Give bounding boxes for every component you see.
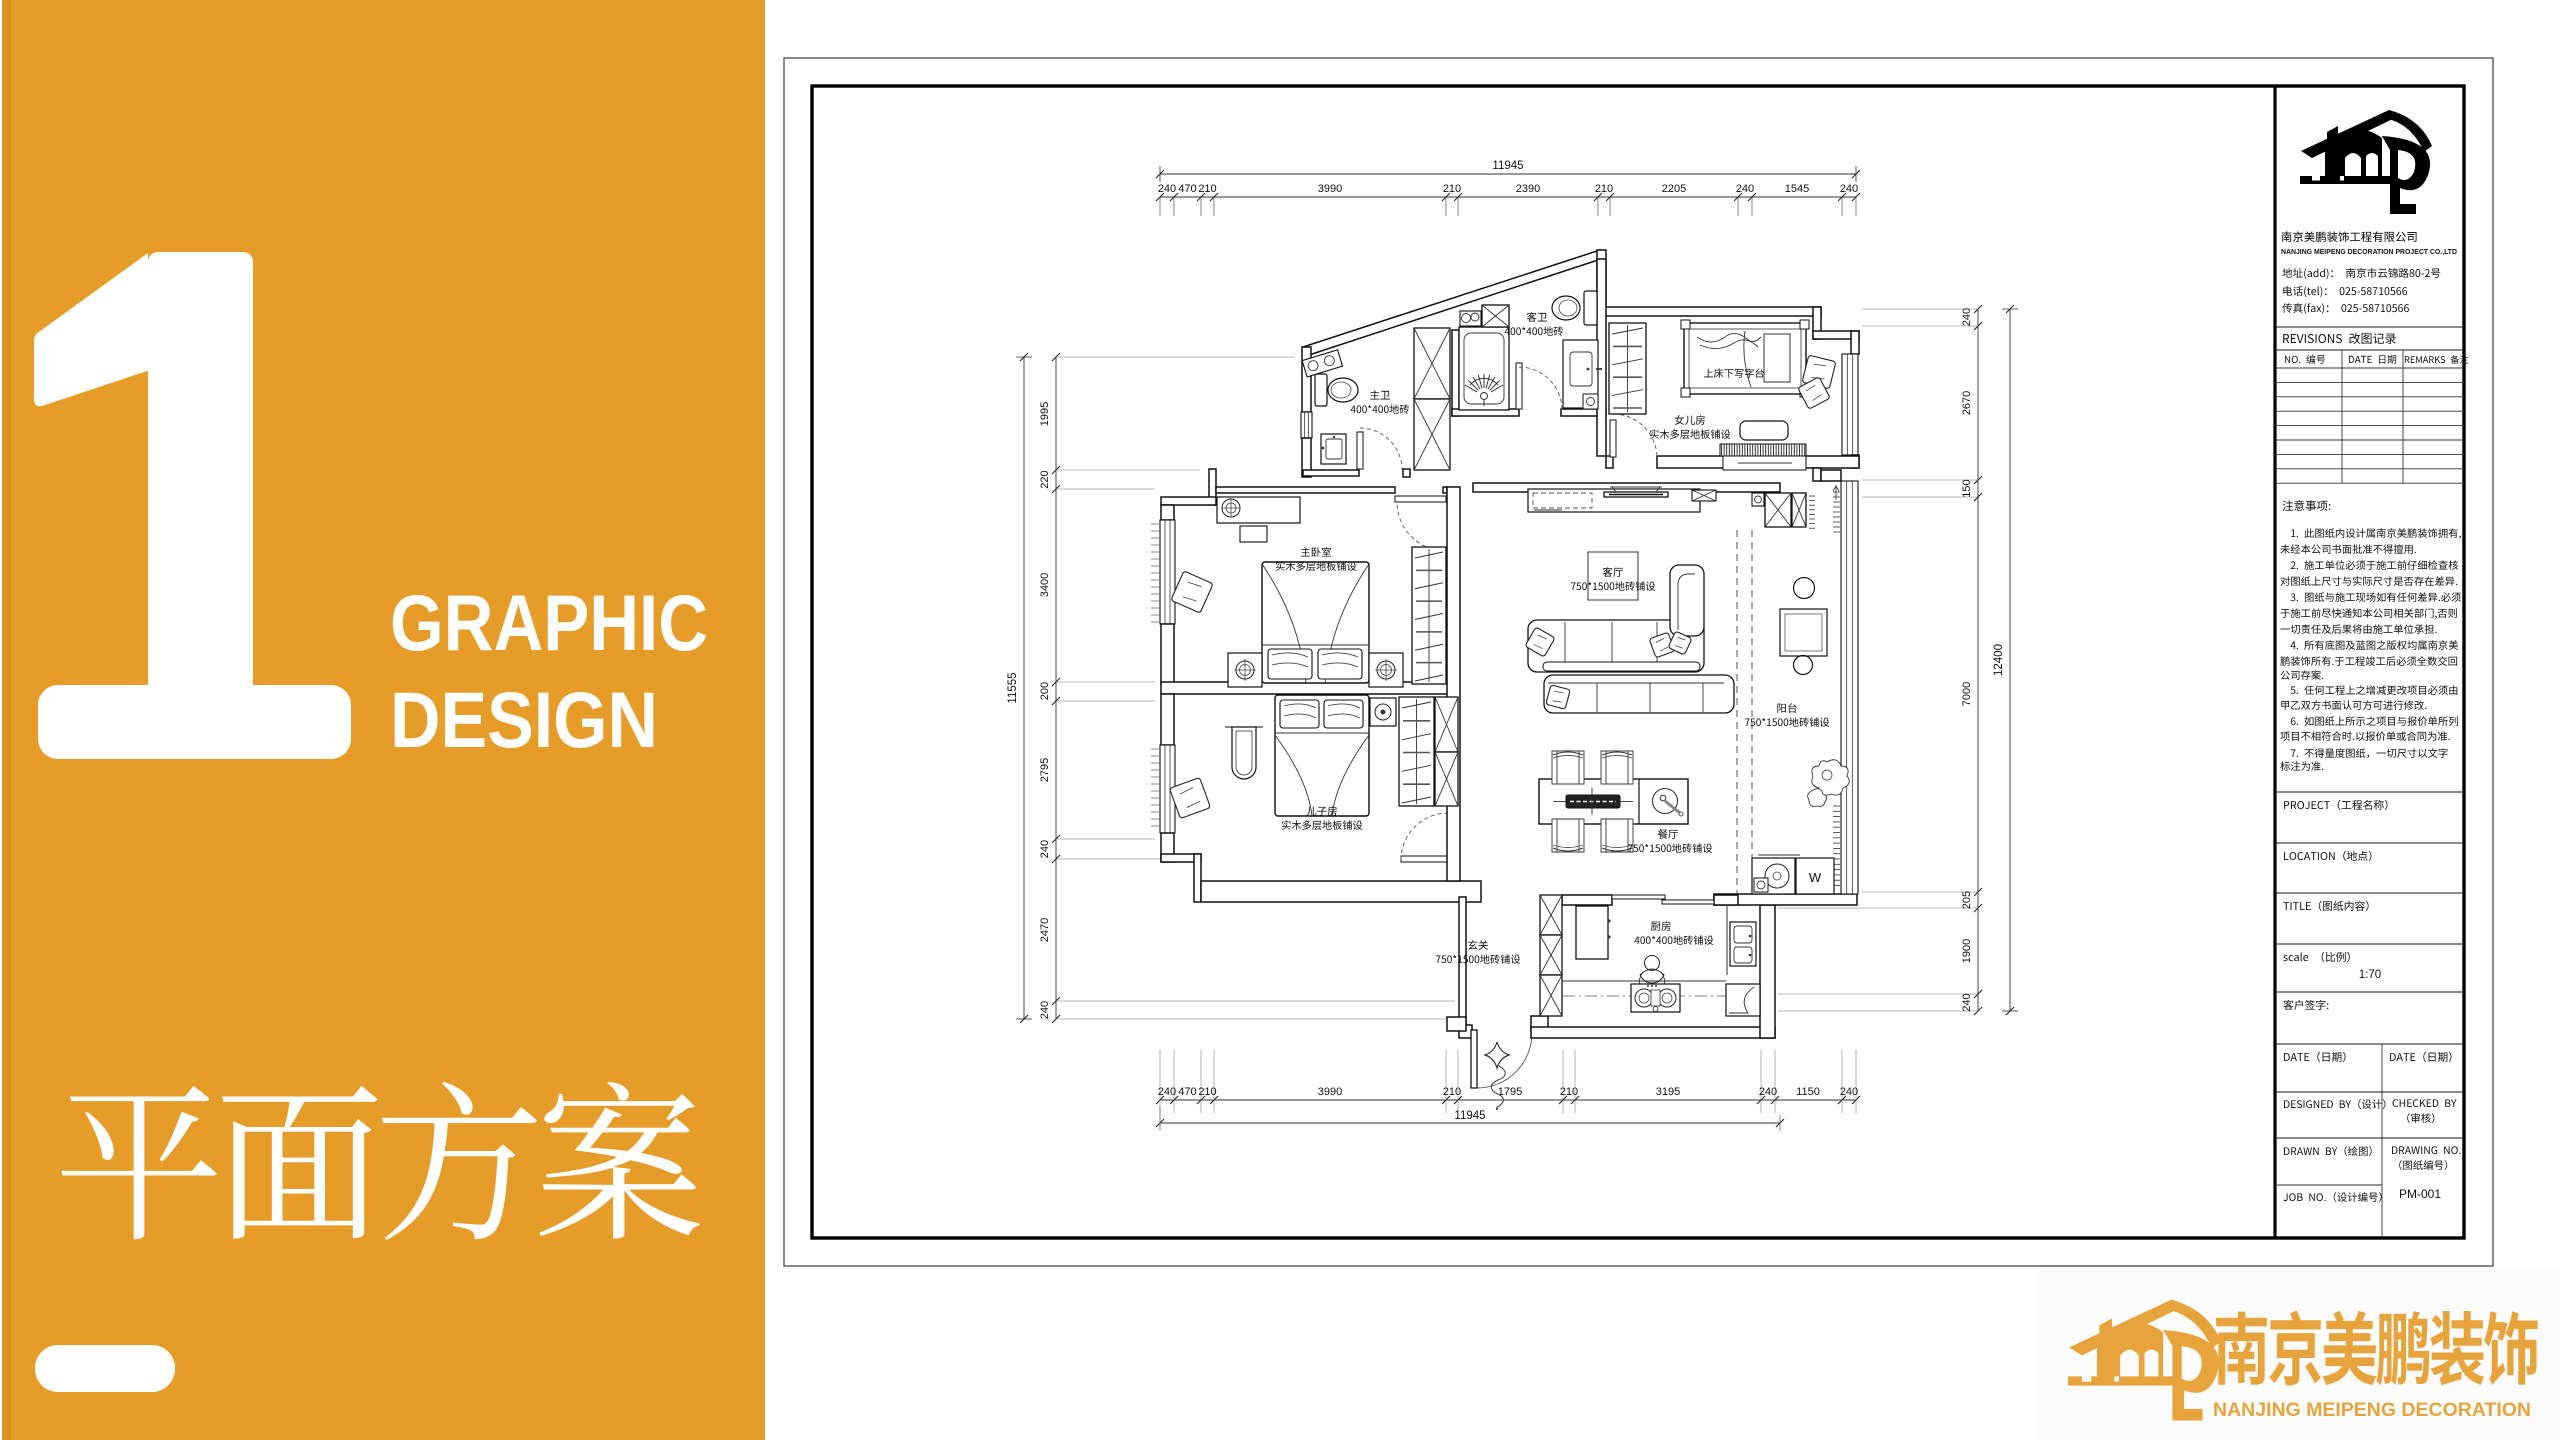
svg-text:11555: 11555 — [1007, 672, 1019, 703]
svg-text:1900: 1900 — [1961, 939, 1973, 963]
svg-text:3195: 3195 — [1656, 1086, 1680, 1098]
svg-text:3990: 3990 — [1318, 1086, 1342, 1098]
svg-text:2670: 2670 — [1961, 391, 1973, 415]
svg-text:205: 205 — [1961, 891, 1973, 909]
svg-text:240: 240 — [1759, 1086, 1777, 1098]
svg-text:1:70: 1:70 — [2359, 969, 2381, 981]
svg-text:1545: 1545 — [1785, 183, 1809, 195]
svg-text:240: 240 — [1158, 1086, 1176, 1098]
svg-text:PM-001: PM-001 — [2399, 1187, 2441, 1201]
svg-text:GRAPHIC: GRAPHIC — [390, 578, 708, 667]
svg-text:470: 470 — [1178, 183, 1196, 195]
svg-text:11945: 11945 — [1454, 1110, 1485, 1122]
svg-text:150: 150 — [1961, 479, 1973, 497]
svg-text:NANJING MEIPENG DECORATION: NANJING MEIPENG DECORATION — [2213, 1400, 2531, 1421]
svg-text:DESIGN: DESIGN — [390, 675, 658, 764]
svg-text:240: 240 — [1736, 183, 1754, 195]
svg-text:NANJING MEIPENG DECORATION PRO: NANJING MEIPENG DECORATION PROJECT CO.,L… — [2281, 247, 2457, 256]
svg-text:7000: 7000 — [1961, 682, 1973, 706]
svg-text:3400: 3400 — [1039, 573, 1051, 597]
svg-text:240: 240 — [1039, 1001, 1051, 1019]
svg-text:210: 210 — [1443, 183, 1461, 195]
svg-text:240: 240 — [1840, 1086, 1858, 1098]
svg-text:2795: 2795 — [1039, 758, 1051, 782]
svg-text:1995: 1995 — [1039, 402, 1051, 426]
svg-text:3990: 3990 — [1318, 183, 1342, 195]
svg-text:210: 210 — [1198, 183, 1216, 195]
svg-text:240: 240 — [1961, 993, 1973, 1011]
svg-text:11945: 11945 — [1492, 160, 1523, 172]
svg-text:W: W — [1809, 870, 1822, 885]
svg-text:210: 210 — [1595, 183, 1613, 195]
svg-text:470: 470 — [1178, 1086, 1196, 1098]
svg-text:240: 240 — [1840, 183, 1858, 195]
svg-text:200: 200 — [1039, 682, 1051, 700]
svg-text:240: 240 — [1039, 840, 1051, 858]
svg-text:210: 210 — [1443, 1086, 1461, 1098]
svg-text:12400: 12400 — [1993, 644, 2005, 676]
svg-text:2205: 2205 — [1662, 183, 1686, 195]
svg-text:2390: 2390 — [1516, 183, 1540, 195]
svg-text:210: 210 — [1560, 1086, 1578, 1098]
svg-text:210: 210 — [1198, 1086, 1216, 1098]
svg-text:2470: 2470 — [1039, 918, 1051, 942]
svg-text:1150: 1150 — [1796, 1086, 1820, 1098]
svg-text:220: 220 — [1039, 470, 1051, 488]
svg-text:240: 240 — [1961, 308, 1973, 326]
svg-text:240: 240 — [1158, 183, 1176, 195]
